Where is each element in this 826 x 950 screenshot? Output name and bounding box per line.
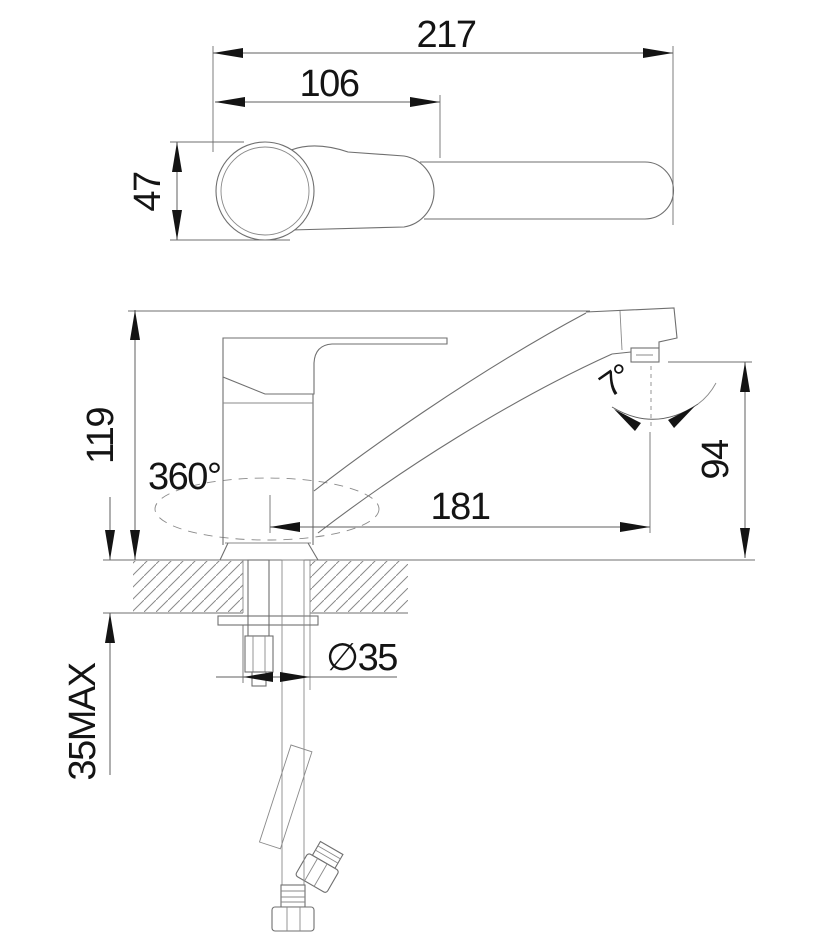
deck-hatch-right [310,561,408,612]
hose-main-fitting [272,885,314,931]
dim-label-hole-diameter: ∅35 [326,637,397,679]
body-circle-outer [216,142,314,240]
dim-label-overall-length: 217 [417,14,476,56]
dim-label-outlet-angle: 7° [593,357,639,405]
lever-handle-front [223,338,447,394]
supply-hose-main [282,560,304,885]
dim-label-spout-reach: 181 [431,486,490,528]
dim-outlet-angle: 7° [593,357,716,431]
dim-label-swivel-range: 360° [148,456,221,498]
dim-label-height: 119 [80,408,122,464]
top-view: 217 106 47 [127,14,674,240]
spout-head [586,308,677,354]
spout-top-view [420,162,674,219]
dim-hole-diameter: ∅35 [216,625,397,683]
mounting-washer [218,616,318,625]
technical-drawing-page: 217 106 47 360° [0,0,826,950]
deck-hatch-left [133,561,243,612]
spout-head-seam [620,311,622,350]
dim-label-deck-thickness: 35MAX [62,662,104,780]
dim-deck-thickness: 35MAX [62,497,115,781]
faucet-dimension-drawing: 217 106 47 360° [0,0,826,950]
dim-handle-length: 106 [215,63,440,158]
base-flare [220,543,318,560]
dim-label-outlet-height: 94 [695,439,737,480]
dim-outlet-height: 94 [668,362,752,558]
dim-label-handle-length: 106 [300,63,359,105]
spout-upper-edge [314,313,586,491]
front-view: 360° 7° [62,308,755,931]
dim-label-body-width: 47 [127,172,169,212]
counter-deck [103,560,755,690]
